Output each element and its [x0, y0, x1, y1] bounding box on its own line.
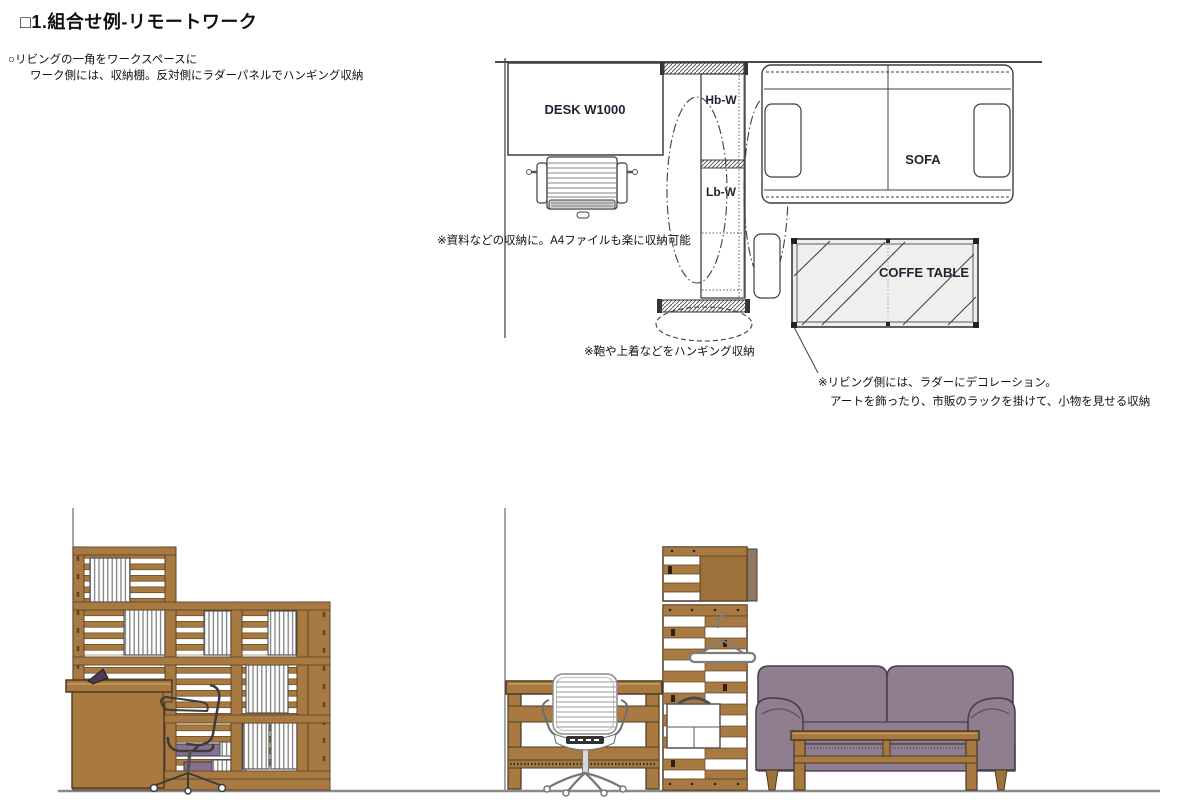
catalog-page: □1.組合せ例-リモートワーク ○リビングの一角をワークスペースに ワーク側には…	[0, 0, 1200, 800]
plan-sofa-label: SOFA	[905, 152, 941, 167]
hanging-bag	[667, 698, 720, 748]
elevation-right	[506, 547, 1015, 796]
elevation-left	[66, 547, 330, 794]
plan-side-item	[754, 234, 780, 298]
plan-sofa: SOFA	[762, 65, 1013, 203]
furniture-drawing: DESK W1000	[0, 0, 1200, 800]
office-chair-front	[543, 674, 628, 796]
sofa-leg	[766, 770, 778, 790]
coffee-table-front	[791, 731, 979, 790]
annotation-leader-line	[794, 327, 818, 373]
plan-desk: DESK W1000	[508, 63, 663, 155]
plan-desk-label: DESK W1000	[545, 102, 626, 117]
plan-coffee-table-label: COFFE TABLE	[879, 265, 969, 280]
plan-desk-chair	[527, 157, 638, 218]
sofa-leg	[995, 770, 1007, 790]
plan-shelf-upper-label: Hb-W	[705, 93, 737, 107]
desk-side	[66, 669, 172, 788]
ladder-panel-tower	[663, 547, 757, 790]
plan-shelf-lower-label: Lb-W	[706, 185, 737, 199]
floor-plan: DESK W1000	[495, 58, 1042, 373]
plan-coffee-table: COFFE TABLE	[791, 238, 979, 328]
